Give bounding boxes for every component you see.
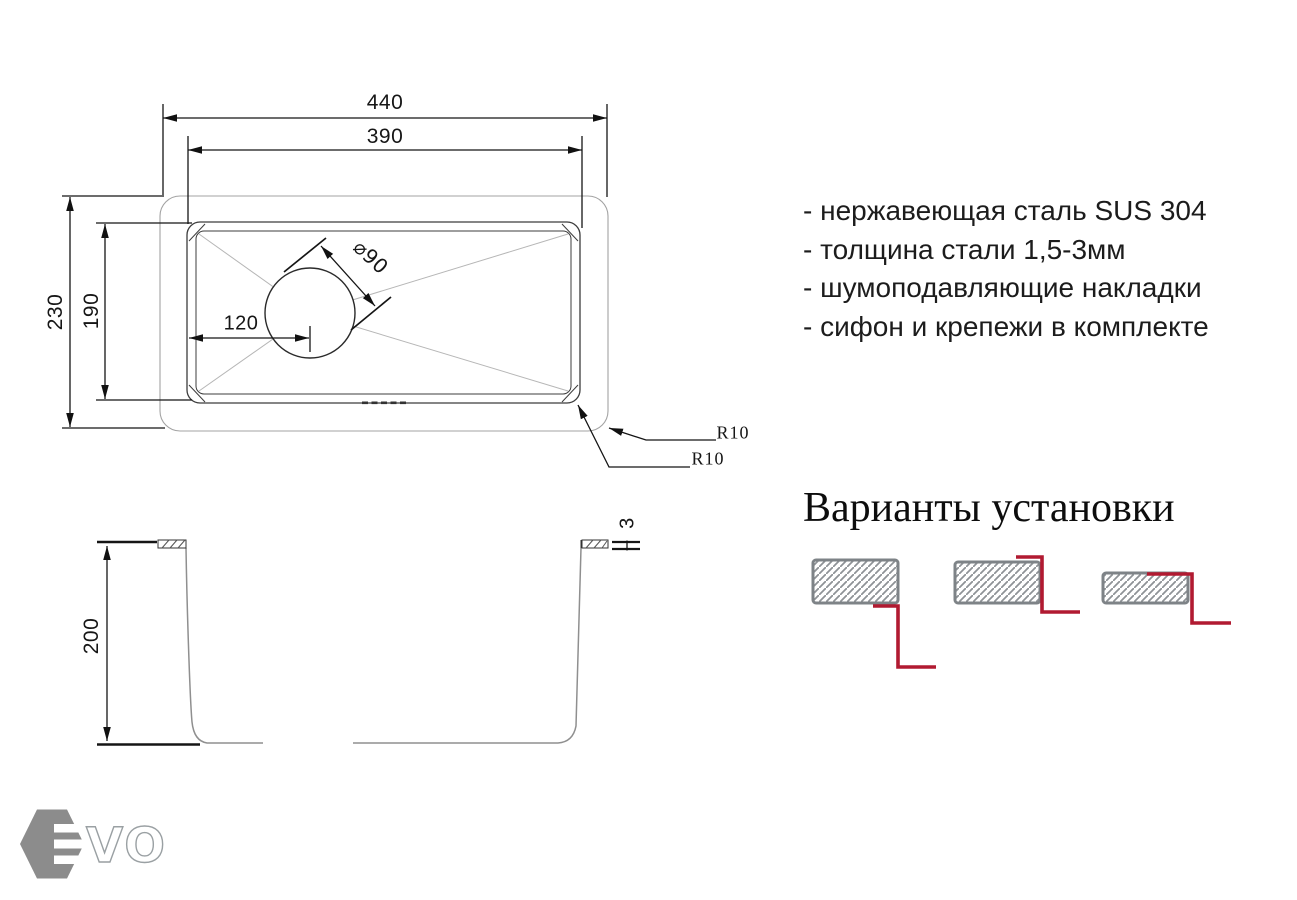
sink-side-view <box>97 540 640 745</box>
dim-label-bowl-width: 390 <box>367 125 404 149</box>
spec-item-thickness: - толщина стали 1,5-3мм <box>803 231 1209 270</box>
left-flange <box>158 540 186 548</box>
spec-item-included: - сифон и крепежи в комплекте <box>803 308 1209 347</box>
spec-list: - нержавеющая сталь SUS 304 - толщина ст… <box>803 192 1209 346</box>
dim-label-overall-width: 440 <box>367 91 404 115</box>
installation-options-title: Варианты установки <box>803 483 1175 533</box>
evo-logo-hexagon <box>20 810 86 879</box>
dim-label-overall-depth: 230 <box>44 294 68 331</box>
evo-logo-e-cuts <box>54 824 86 864</box>
right-flange <box>582 540 608 548</box>
variant-flushmount <box>955 557 1080 612</box>
dim-label-bowl-height: 200 <box>80 618 104 655</box>
variant-undermount-sink-edge <box>873 606 936 667</box>
dim-label-bowl-depth: 190 <box>80 293 104 330</box>
variant-topmount <box>1103 573 1231 623</box>
dim-label-outer-corner-radius: R10 <box>716 423 749 444</box>
side-profile-lines <box>186 548 581 743</box>
variant-undermount <box>813 560 936 667</box>
sink-spec-drawing-page: 440 390 230 190 120 ⌀90 R10 R10 200 3 - … <box>0 0 1297 900</box>
evo-logo-text: VO <box>86 822 167 870</box>
flange-connectors <box>186 540 581 548</box>
installation-variants <box>813 557 1231 667</box>
dim-label-bowl-corner-radius: R10 <box>691 449 724 470</box>
side-view-dimension-lines <box>97 541 640 745</box>
dim-label-steel-thickness: 3 <box>617 517 640 529</box>
dim-label-drain-offset: 120 <box>224 313 259 336</box>
spec-item-sound-pads: - шумоподавляющие накладки <box>803 269 1209 308</box>
spec-item-material: - нержавеющая сталь SUS 304 <box>803 192 1209 231</box>
technical-drawing <box>0 0 1297 900</box>
